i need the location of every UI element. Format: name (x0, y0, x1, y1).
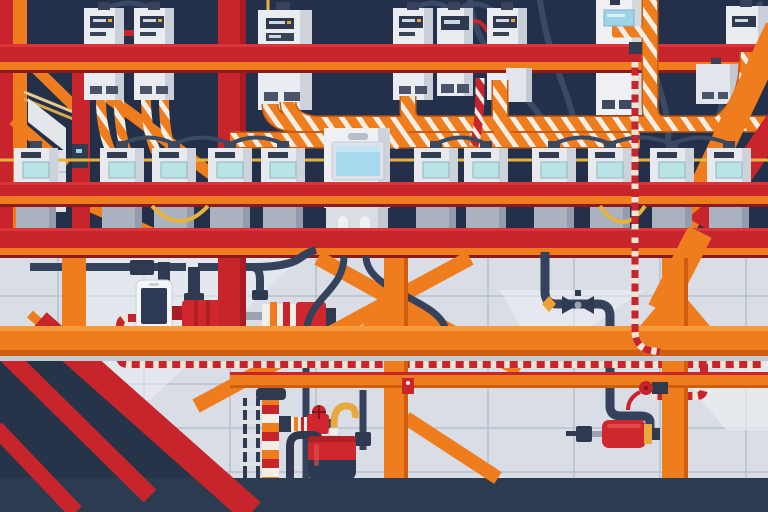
red-link-pipe (124, 30, 134, 36)
meter-lower-body (466, 207, 506, 228)
meter-lower-body (534, 207, 574, 228)
orange-mid-beam (0, 326, 768, 361)
meter-lower-body (652, 207, 692, 228)
handle-slot (348, 133, 368, 140)
industrial-illustration (0, 0, 768, 512)
phone-plug (158, 262, 170, 282)
meter-lower-body (16, 207, 56, 228)
coupling (291, 417, 307, 431)
cable-block (355, 432, 371, 446)
alarm-box (402, 378, 414, 394)
phone-speaker (149, 283, 159, 286)
left-orange-post-lower (62, 258, 86, 332)
red-shelf-beam (0, 182, 768, 207)
meter-lower-body (210, 207, 250, 228)
meter-lower-body (102, 207, 142, 228)
yellow-ring (644, 424, 652, 444)
floor (0, 478, 768, 512)
plug (188, 267, 200, 297)
plug (252, 290, 268, 300)
meter-lower-body (263, 207, 303, 228)
orange-rail (230, 372, 768, 388)
pipe-connector (130, 260, 154, 275)
cable-connector (629, 42, 642, 54)
striped-stand-pipe (262, 396, 279, 478)
meter-lower-body (709, 207, 749, 228)
meter-lower-body (416, 207, 456, 228)
phone-screen (141, 288, 167, 324)
meter-lower-body (154, 207, 194, 228)
canister-plug (576, 426, 592, 442)
junction-box (72, 144, 88, 168)
electric-meter-small (506, 68, 532, 102)
pipe-cap (256, 388, 286, 400)
lower-red-beam (0, 228, 768, 258)
